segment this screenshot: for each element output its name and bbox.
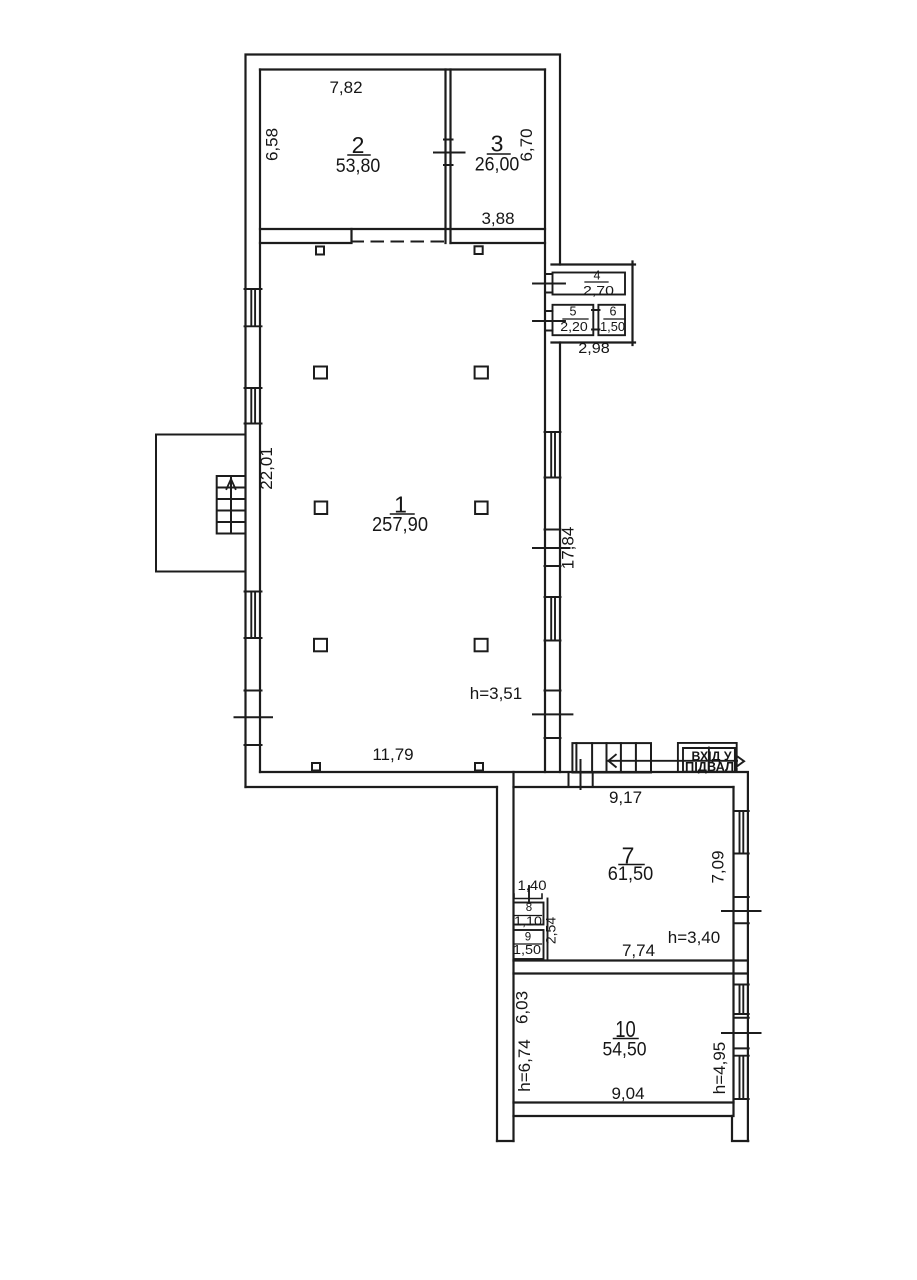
svg-text:2,98: 2,98 (578, 341, 610, 357)
svg-text:1,40: 1,40 (518, 878, 547, 893)
svg-text:5: 5 (570, 305, 577, 319)
svg-text:2,70: 2,70 (583, 284, 614, 298)
svg-text:2,54: 2,54 (543, 917, 559, 944)
svg-text:ПІДВАЛ: ПІДВАЛ (685, 760, 734, 774)
svg-text:8: 8 (526, 902, 532, 914)
svg-text:6: 6 (610, 305, 617, 319)
svg-text:3: 3 (491, 131, 504, 157)
svg-text:6,58: 6,58 (263, 128, 282, 161)
svg-text:7,82: 7,82 (329, 78, 362, 97)
svg-text:1,50: 1,50 (600, 320, 625, 334)
svg-text:h=6,74: h=6,74 (515, 1039, 534, 1091)
svg-text:7,74: 7,74 (622, 941, 655, 960)
svg-text:11,79: 11,79 (372, 745, 413, 764)
svg-text:9,17: 9,17 (609, 788, 642, 807)
svg-text:4: 4 (594, 269, 601, 283)
svg-text:54,50: 54,50 (603, 1040, 647, 1061)
svg-text:2: 2 (352, 132, 365, 158)
svg-text:7,09: 7,09 (709, 850, 728, 883)
svg-text:6,70: 6,70 (517, 128, 536, 161)
svg-text:61,50: 61,50 (608, 864, 654, 885)
svg-text:26,00: 26,00 (475, 155, 520, 176)
svg-text:22,01: 22,01 (257, 447, 276, 490)
svg-text:257,90: 257,90 (372, 514, 428, 536)
svg-text:6,03: 6,03 (513, 991, 532, 1024)
svg-text:h=3,51: h=3,51 (470, 684, 522, 703)
svg-text:9,04: 9,04 (611, 1084, 644, 1103)
svg-text:53,80: 53,80 (336, 156, 381, 177)
svg-text:h=4,95: h=4,95 (710, 1042, 729, 1094)
svg-text:2,20: 2,20 (560, 320, 588, 334)
svg-text:17,84: 17,84 (559, 527, 578, 570)
svg-text:h=3,40: h=3,40 (668, 928, 720, 947)
svg-text:3,88: 3,88 (481, 209, 514, 228)
